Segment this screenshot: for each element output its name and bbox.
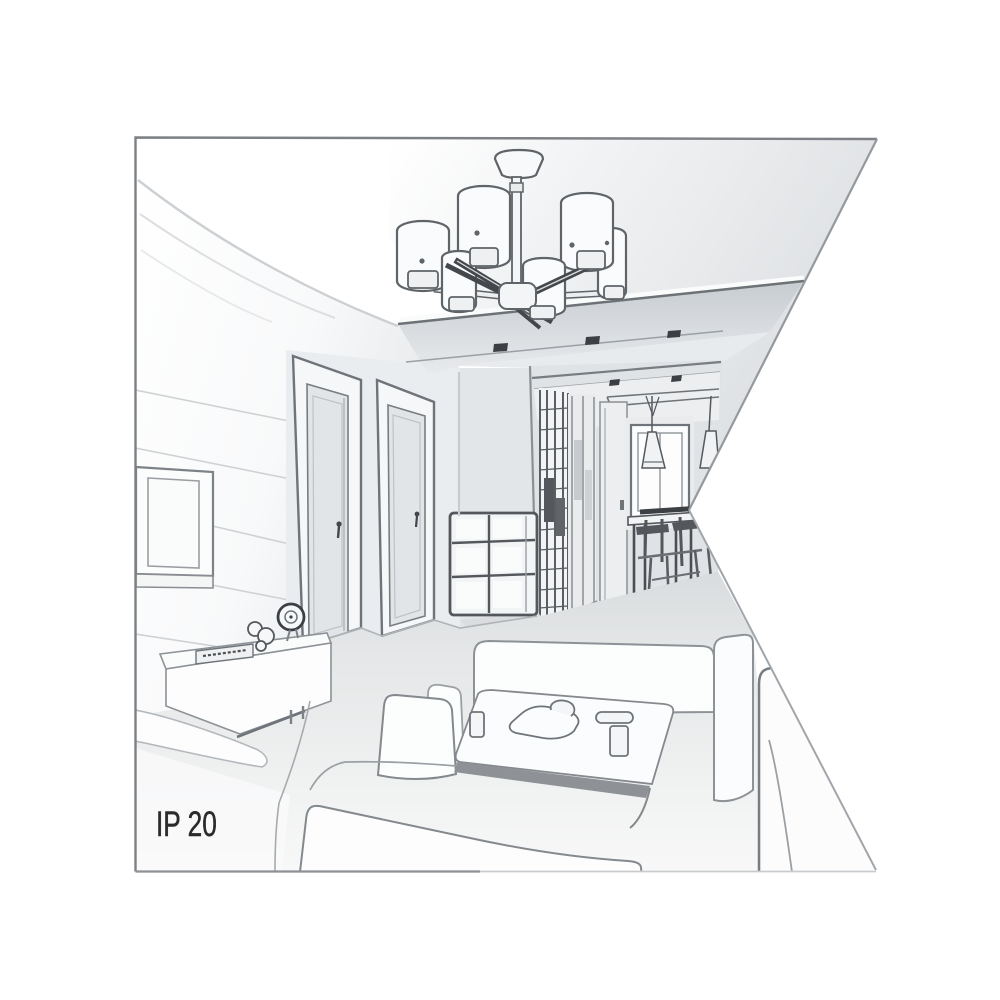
svg-text:IP 20: IP 20 <box>156 804 217 844</box>
